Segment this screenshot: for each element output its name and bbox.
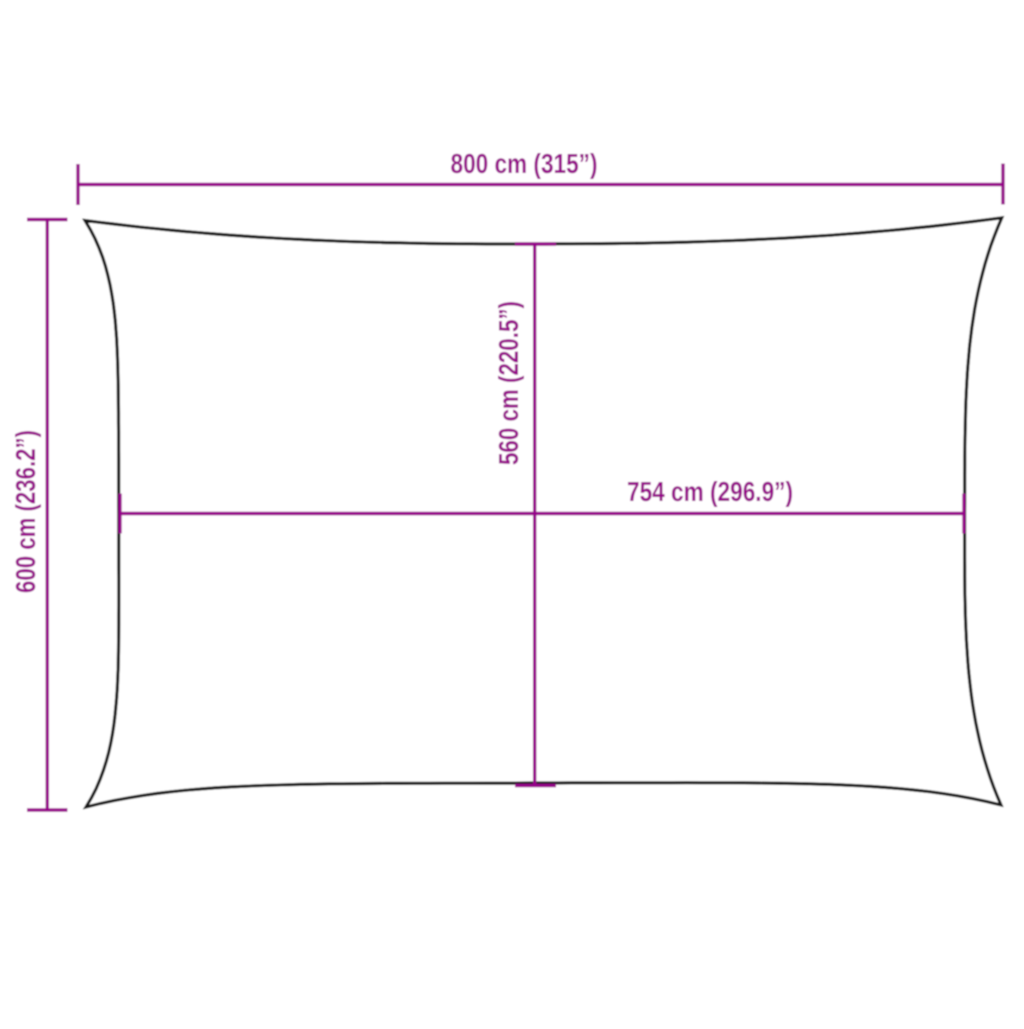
svg-text:600 cm (236.2”): 600 cm (236.2”) [10, 430, 41, 593]
svg-text:560 cm (220.5”): 560 cm (220.5”) [493, 301, 524, 465]
svg-text:754 cm (296.9”): 754 cm (296.9”) [627, 476, 793, 507]
svg-text:800 cm (315”): 800 cm (315”) [451, 148, 598, 179]
